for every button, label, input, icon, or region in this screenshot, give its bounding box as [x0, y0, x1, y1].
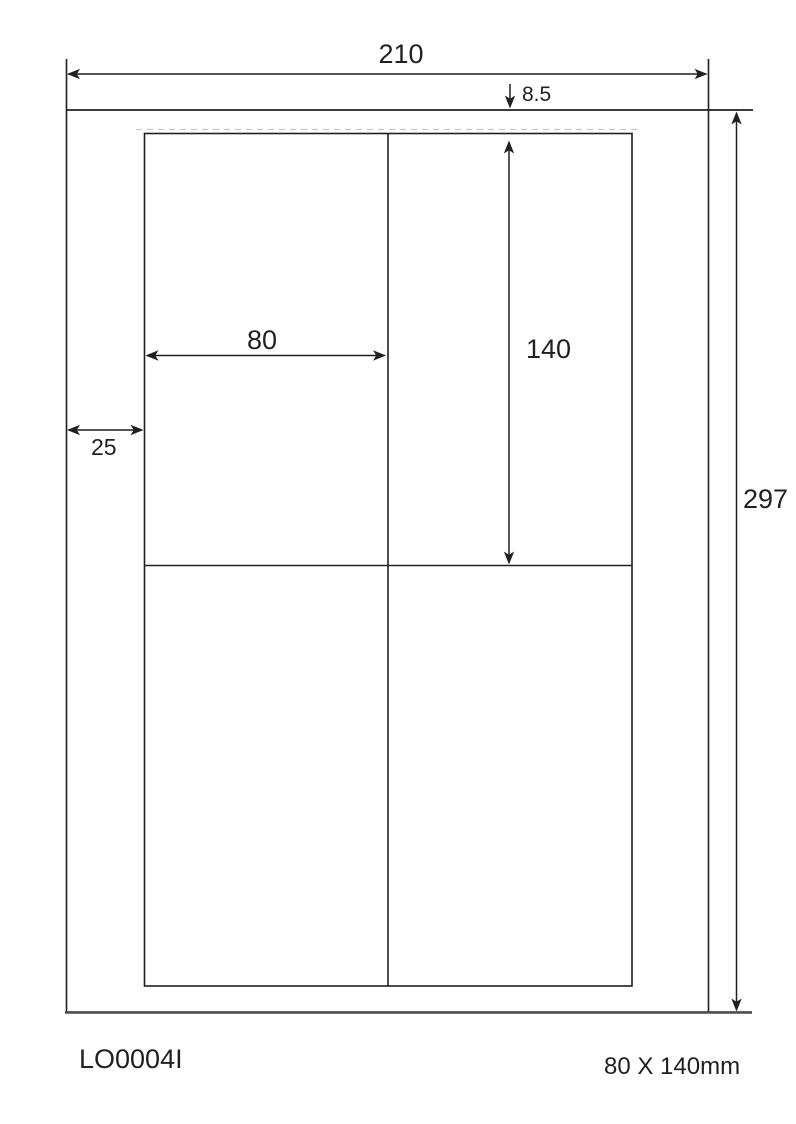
- dimension-line-page-height: [731, 112, 741, 1012]
- label-format: 80 X 140mm: [604, 1055, 740, 1079]
- dimension-label-page-width: 210: [378, 41, 423, 68]
- dimension-label-label-height: 140: [526, 336, 571, 363]
- paper-outline: [65, 59, 753, 1012]
- dimension-label-left-margin: 25: [91, 436, 117, 459]
- dimension-line-label-height: [504, 141, 514, 565]
- drawing-lines: [0, 0, 796, 1124]
- label-sheet-drawing: 210 8.5 80 140 25 297 LO0004I 80 X 140mm: [0, 0, 796, 1124]
- label-grid: [145, 134, 633, 987]
- dimension-label-page-height: 297: [743, 486, 788, 513]
- dimension-line-page-width: [67, 69, 708, 79]
- product-code: LO0004I: [79, 1046, 183, 1073]
- dimension-label-label-width: 80: [247, 327, 277, 354]
- dimension-line-top-margin: [505, 84, 515, 109]
- dimension-label-top-margin: 8.5: [522, 84, 551, 105]
